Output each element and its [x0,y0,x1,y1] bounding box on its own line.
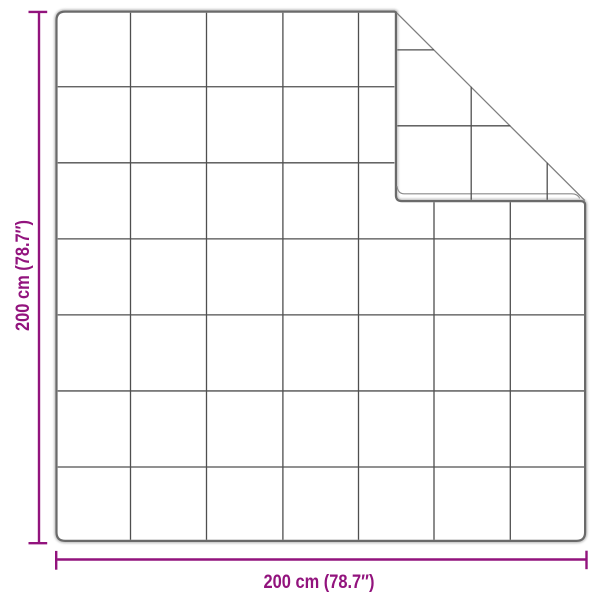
svg-text:200 cm (78.7″): 200 cm (78.7″) [264,571,375,593]
svg-text:200 cm (78.7″): 200 cm (78.7″) [12,220,34,331]
